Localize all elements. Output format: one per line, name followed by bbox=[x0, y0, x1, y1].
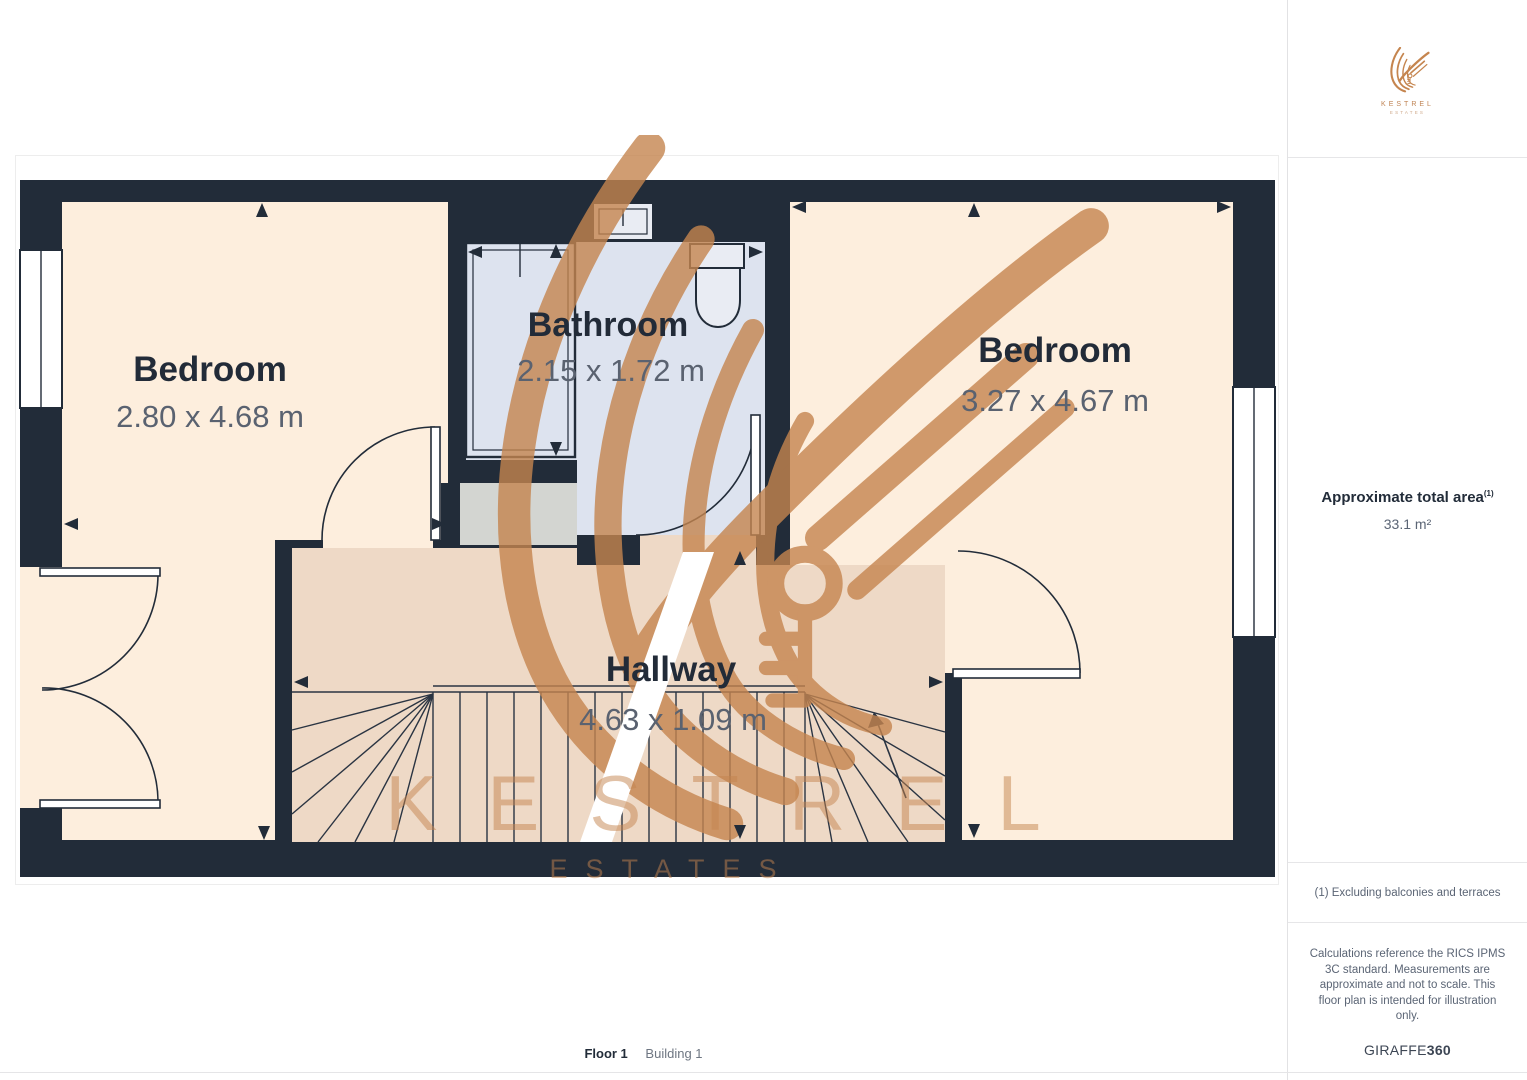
sidebar-logo: KESTREL ESTATES bbox=[1288, 0, 1527, 158]
room-dims: 2.80 x 4.68 m bbox=[116, 399, 304, 434]
floor-label: Floor 1 bbox=[584, 1046, 627, 1061]
disclaimer-section: Calculations reference the RICS IPMS 3C … bbox=[1288, 923, 1527, 1080]
window-icon bbox=[20, 250, 62, 408]
bedroom-left-door-threshold bbox=[323, 540, 433, 548]
room-dims: 3.27 x 4.67 m bbox=[961, 383, 1149, 418]
bedroom-right-door-threshold bbox=[945, 551, 962, 673]
total-area-section: Approximate total area(1) 33.1 m² bbox=[1288, 158, 1527, 863]
watermark-sub: ESTATES bbox=[549, 854, 794, 884]
info-sidebar: KESTREL ESTATES Approximate total area(1… bbox=[1287, 0, 1527, 1080]
provider-suffix: 360 bbox=[1427, 1042, 1451, 1058]
room-label: Bedroom bbox=[133, 350, 287, 389]
window-icon bbox=[1233, 387, 1275, 637]
floorplan-page: KESTREL ESTATES Bedroom 2.80 x 4.68 m Ba… bbox=[0, 0, 1527, 1080]
provider-logo: GIRAFFE360 bbox=[1308, 1041, 1507, 1060]
bottom-divider bbox=[0, 1072, 1527, 1073]
area-note-ref: (1) bbox=[1484, 489, 1494, 498]
room-label: Hallway bbox=[606, 650, 737, 689]
disclaimer-text: Calculations reference the RICS IPMS 3C … bbox=[1308, 947, 1507, 1025]
watermark-brand: KESTREL bbox=[385, 759, 1090, 847]
plan-footer: Floor 1 Building 1 bbox=[0, 1046, 1287, 1061]
room-label: Bathroom bbox=[528, 306, 689, 344]
kestrel-logo-icon bbox=[1385, 43, 1431, 97]
footnote-text: (1) Excluding balconies and terraces bbox=[1314, 887, 1500, 899]
logo-sub-text: ESTATES bbox=[1390, 110, 1425, 115]
room-dims: 2.15 x 1.72 m bbox=[517, 353, 705, 388]
area-label: Approximate total area(1) bbox=[1321, 489, 1493, 506]
logo-brand-text: KESTREL bbox=[1381, 101, 1434, 108]
floorplan-canvas: KESTREL ESTATES Bedroom 2.80 x 4.68 m Ba… bbox=[0, 0, 1287, 1080]
room-dims: 4.63 x 1.09 m bbox=[579, 702, 767, 737]
footnote-section: (1) Excluding balconies and terraces bbox=[1288, 863, 1527, 923]
double-door-opening bbox=[20, 567, 62, 808]
area-value: 33.1 m² bbox=[1384, 516, 1431, 532]
building-label: Building 1 bbox=[645, 1046, 702, 1061]
room-label: Bedroom bbox=[978, 331, 1132, 370]
